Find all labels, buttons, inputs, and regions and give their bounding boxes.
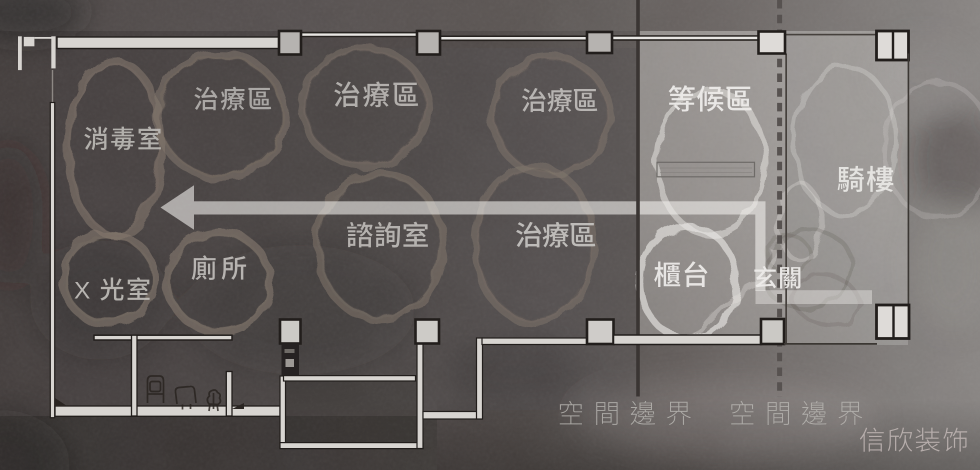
svg-text:X: X <box>74 278 90 305</box>
